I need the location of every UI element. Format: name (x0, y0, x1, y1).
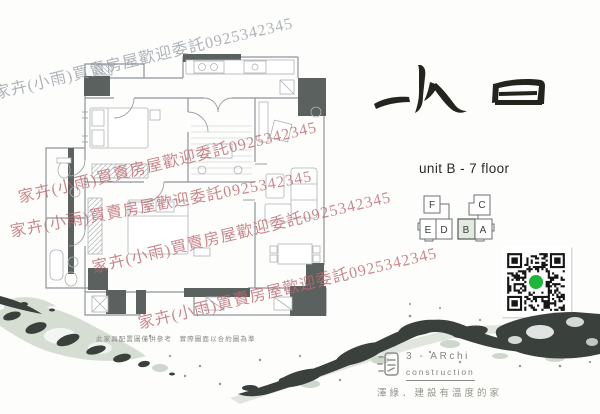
unit-key-plan: F C E D B A (416, 193, 504, 251)
unit-letter: B (463, 225, 470, 236)
unit-letter: C (478, 200, 485, 211)
project-logo-calligraphy (366, 56, 566, 126)
builder-name: 3 - ARchi (406, 351, 475, 362)
property-flyer: 此家具配置圖僅供參考 實際圖面以合約圖為準 水日 unit B - 7 floo… (0, 0, 600, 414)
builder-tagline: 澤綠．建設有溫度的家 (377, 385, 502, 399)
line-qr-code (501, 246, 571, 317)
unit-floor-label: unit B - 7 floor (419, 161, 509, 176)
unit-letter: E (425, 225, 432, 236)
unit-letter: D (440, 225, 447, 236)
builder-brand-block: 3 - ARchi construction (377, 351, 475, 381)
floor-plan-drawing (44, 52, 340, 360)
project-logo-text: 水日 (0, 0, 1, 1)
plan-disclaimer: 此家具配置圖僅供參考 實際圖面以合約圖為準 (96, 333, 256, 343)
line-green-dot (529, 274, 543, 288)
unit-letter: A (480, 225, 487, 236)
unit-letter: F (429, 200, 435, 211)
builder-subname: construction (406, 367, 475, 381)
builder-logo-icon (377, 351, 399, 378)
